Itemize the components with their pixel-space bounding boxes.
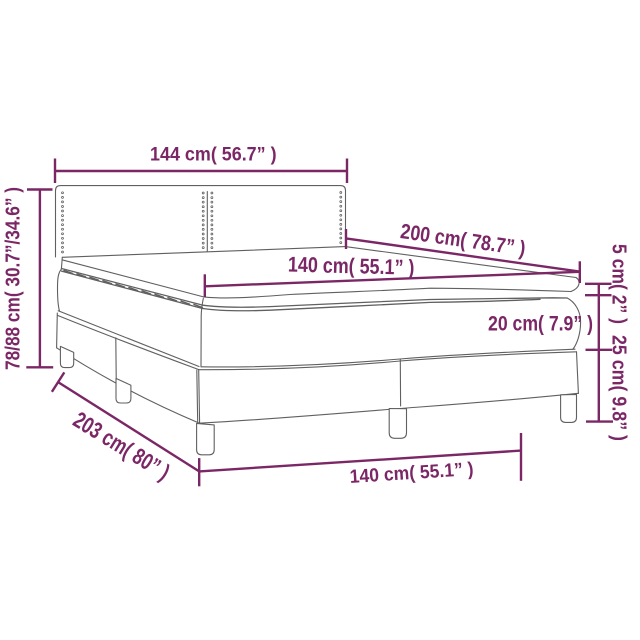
svg-text:25 cm( 9.8” ): 25 cm( 9.8” ) [608,335,631,441]
svg-text:140 cm( 55.1” ): 140 cm( 55.1” ) [288,253,415,280]
svg-text:20 cm( 7.9” ): 20 cm( 7.9” ) [488,313,593,336]
svg-text:144 cm( 56.7” ): 144 cm( 56.7” ) [150,144,277,165]
svg-text:78/88 cm( 30.7”/34.6” ): 78/88 cm( 30.7”/34.6” ) [3,187,25,370]
svg-text:5 cm( 2” ): 5 cm( 2” ) [608,244,631,324]
